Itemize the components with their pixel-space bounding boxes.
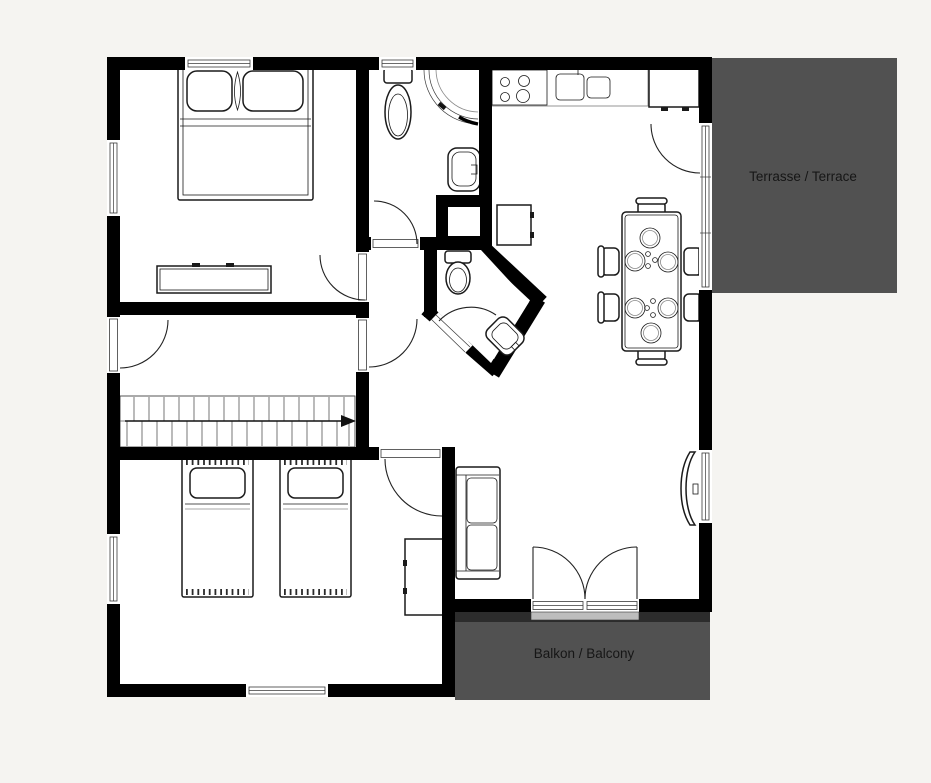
dining-chair-left2 xyxy=(598,292,619,323)
pillow xyxy=(288,468,343,498)
wardrobe-hinge xyxy=(403,560,407,566)
window-terrace-band-right xyxy=(699,123,712,290)
window-bedroom1-left xyxy=(107,140,120,216)
wall-hall-top xyxy=(107,302,369,315)
single-bed-2 xyxy=(280,458,351,597)
pillow xyxy=(190,468,245,498)
window-bedroom2-bottom xyxy=(246,684,328,697)
window-bedroom2-left xyxy=(107,534,120,604)
balcony-label: Balkon / Balcony xyxy=(534,646,635,661)
dining-chair-left1 xyxy=(598,246,619,277)
wardrobe-hinge xyxy=(403,588,407,594)
fridge-hinge xyxy=(661,107,668,111)
sofa xyxy=(456,467,500,579)
window-bathroom-top xyxy=(379,57,416,70)
dresser-knob xyxy=(192,263,200,267)
wall-bathroom-right xyxy=(479,57,492,197)
dining-table xyxy=(622,212,681,351)
double-bed xyxy=(178,64,313,200)
fridge xyxy=(649,69,699,111)
wc-toilet xyxy=(445,251,471,294)
balcony-threshold xyxy=(531,612,639,620)
dresser xyxy=(157,263,271,293)
dresser-knob xyxy=(226,263,234,267)
fridge-hinge xyxy=(682,107,689,111)
duct-shaft-inner xyxy=(448,207,480,236)
toilet xyxy=(384,68,412,139)
stairs xyxy=(120,396,356,447)
window-living-right xyxy=(699,450,712,523)
kitchen-cabinet xyxy=(497,205,534,245)
pillow xyxy=(243,71,303,111)
kitchen-counter xyxy=(492,69,648,106)
washbasin xyxy=(448,148,480,191)
terrace-label: Terrasse / Terrace xyxy=(749,169,857,184)
single-bed-1 xyxy=(182,458,253,597)
window-bedroom1-top xyxy=(185,57,253,70)
wardrobe xyxy=(403,539,443,615)
cabinet-hinge xyxy=(530,212,534,218)
floorplan: Terrasse / Terrace Balkon / Balcony xyxy=(0,0,931,783)
wall-bedroom2-right xyxy=(442,447,455,697)
pillow xyxy=(187,71,232,111)
cabinet-hinge xyxy=(530,232,534,238)
